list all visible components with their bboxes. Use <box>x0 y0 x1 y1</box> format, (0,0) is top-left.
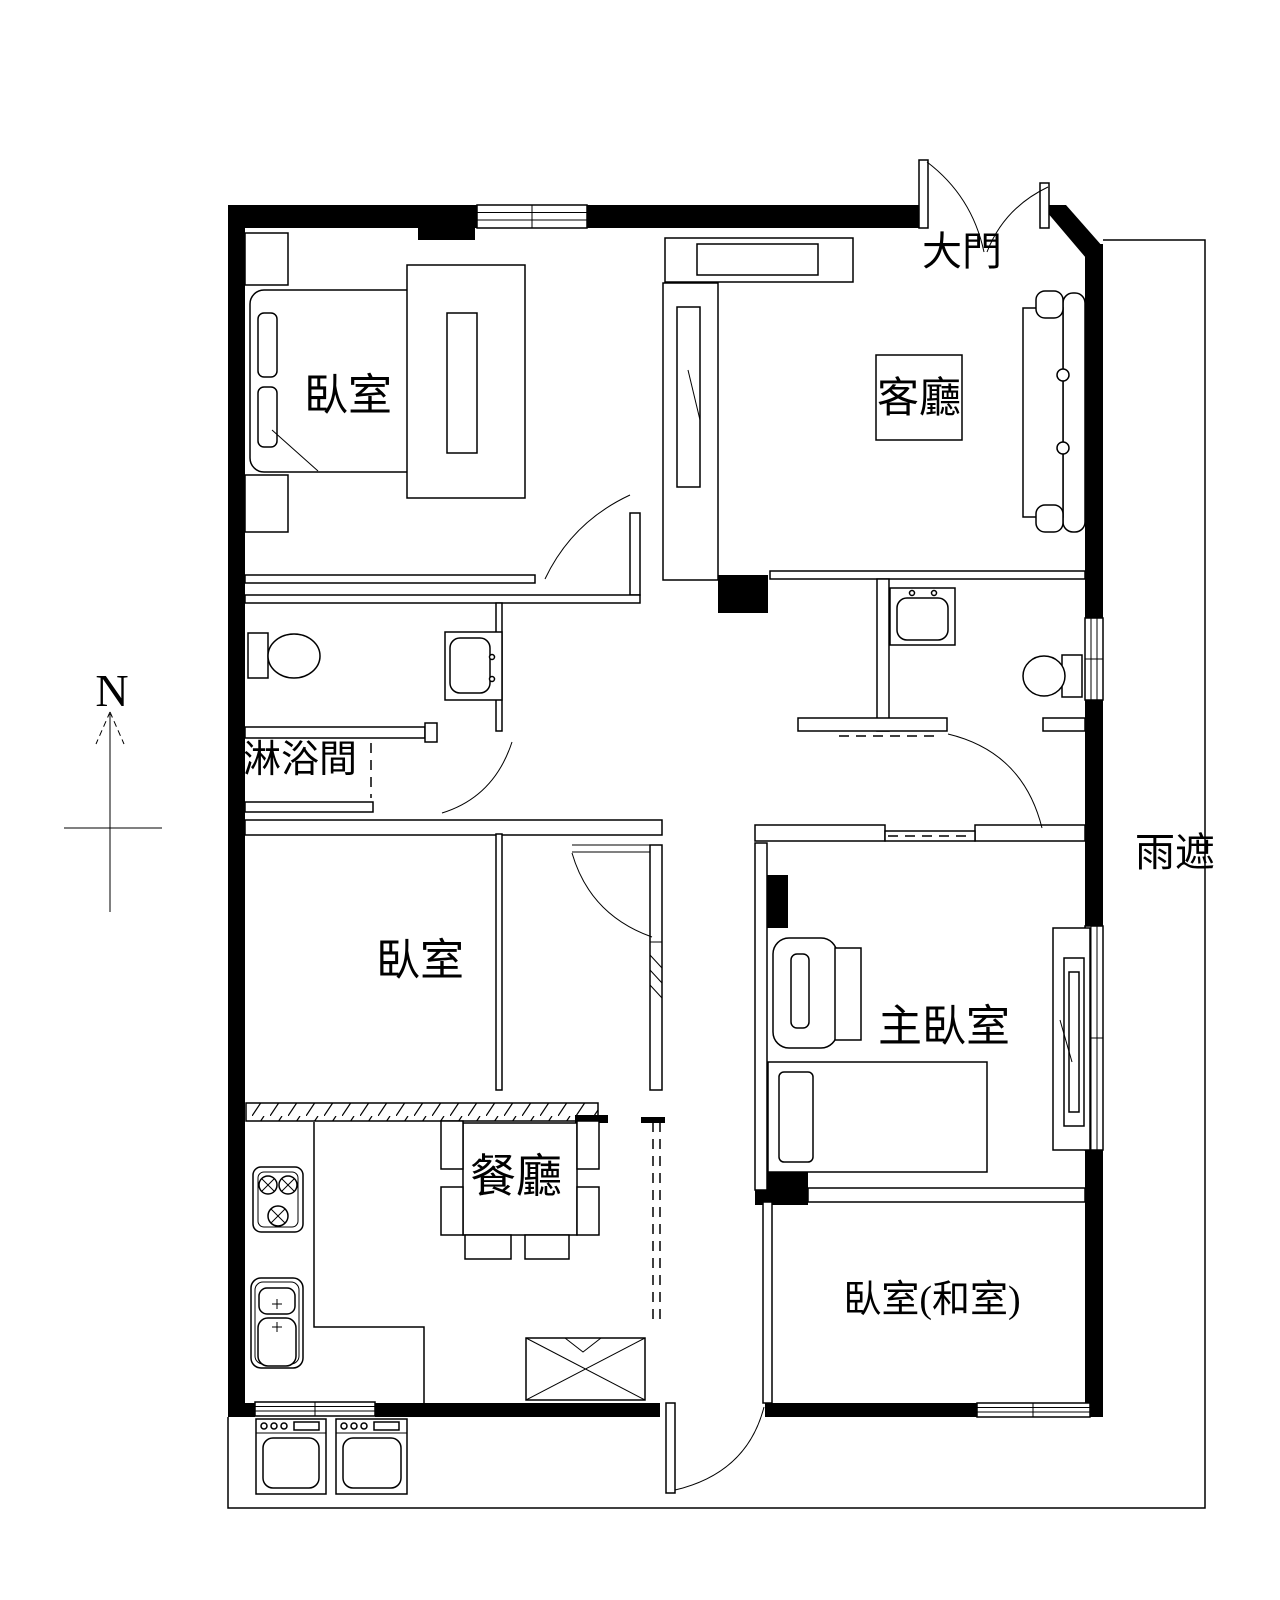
balcony-door <box>666 1403 764 1493</box>
sofa-armrest <box>1036 505 1063 532</box>
chair <box>441 1121 463 1169</box>
faucet-dot <box>490 677 495 682</box>
tatami-bedroom-label: 臥室(和室) <box>843 1279 1020 1321</box>
entry-furniture <box>663 238 853 580</box>
bedroom2-label: 臥室 <box>376 936 464 985</box>
shoe-cabinet-inner <box>697 244 818 275</box>
compass-n-label: N <box>95 665 128 716</box>
chair <box>525 1235 569 1259</box>
chair <box>441 1187 463 1235</box>
toilet-room-fixtures <box>248 632 502 700</box>
window-bedroom1-north <box>477 205 587 228</box>
sink-basin <box>897 598 948 640</box>
faucet-dot <box>932 591 937 596</box>
wardrobe-inner2 <box>1069 972 1079 1112</box>
tall-cabinet-inner <box>677 307 700 487</box>
sofa-seat <box>1023 308 1063 517</box>
interior-walls <box>245 513 1085 1403</box>
rain-shelter-label: 雨遮 <box>1135 830 1215 875</box>
faucet-dot <box>490 655 495 660</box>
toilet-tank <box>248 633 268 678</box>
armchair-back <box>791 954 809 1028</box>
pillow <box>258 387 277 447</box>
balcony-appliances <box>256 1419 407 1494</box>
sofa-cushion-notch <box>1057 369 1069 381</box>
chair <box>577 1187 599 1235</box>
sink-basin <box>450 638 490 693</box>
cabinet <box>245 233 288 285</box>
floor-plan-canvas: N 臥室 大門 客廳 淋浴間 臥室 主臥室 餐廳 臥室(和室) 雨遮 <box>0 0 1280 1600</box>
master-bedroom-label: 主臥室 <box>878 1002 1010 1051</box>
sofa-armrest <box>1036 291 1063 318</box>
bathroom-fixtures <box>890 588 1082 697</box>
pillow <box>779 1072 813 1162</box>
bedroom1-door-arc <box>545 495 630 579</box>
bedroom2-door-arc <box>572 853 652 937</box>
dining-room-label: 餐廳 <box>470 1151 562 1202</box>
toilet-bowl <box>268 634 320 678</box>
sofa-back <box>1063 293 1085 532</box>
toilet-bowl <box>1023 656 1065 696</box>
desk-inner <box>447 313 477 453</box>
window-bathroom-east <box>1085 618 1103 700</box>
floor-plan: N 臥室 大門 客廳 淋浴間 臥室 主臥室 餐廳 臥室(和室) 雨遮 <box>0 0 1280 1600</box>
chair <box>577 1121 599 1169</box>
bedroom1-label: 臥室 <box>304 371 392 420</box>
toilet-room-door-arc <box>442 742 512 813</box>
armchair-side <box>835 948 861 1040</box>
chair <box>465 1235 511 1259</box>
hatched-wall <box>246 1103 598 1121</box>
compass-north <box>64 712 162 912</box>
master-sliding-door <box>885 831 975 841</box>
living-room-label: 客廳 <box>877 375 961 422</box>
washing-machine <box>256 1419 326 1494</box>
shower-room-label: 淋浴間 <box>243 739 357 781</box>
pillow <box>258 313 277 377</box>
washing-machine <box>336 1419 407 1494</box>
kitchen-opening <box>653 1122 660 1320</box>
faucet-dot <box>910 591 915 596</box>
cabinet <box>245 475 288 532</box>
main-door-label: 大門 <box>922 229 1002 274</box>
window-tatami-south <box>977 1403 1090 1417</box>
sofa-cushion-notch <box>1057 442 1069 454</box>
storage-box <box>526 1338 645 1400</box>
bathroom-door-arc <box>948 734 1042 828</box>
window-kitchen-south <box>255 1402 375 1416</box>
